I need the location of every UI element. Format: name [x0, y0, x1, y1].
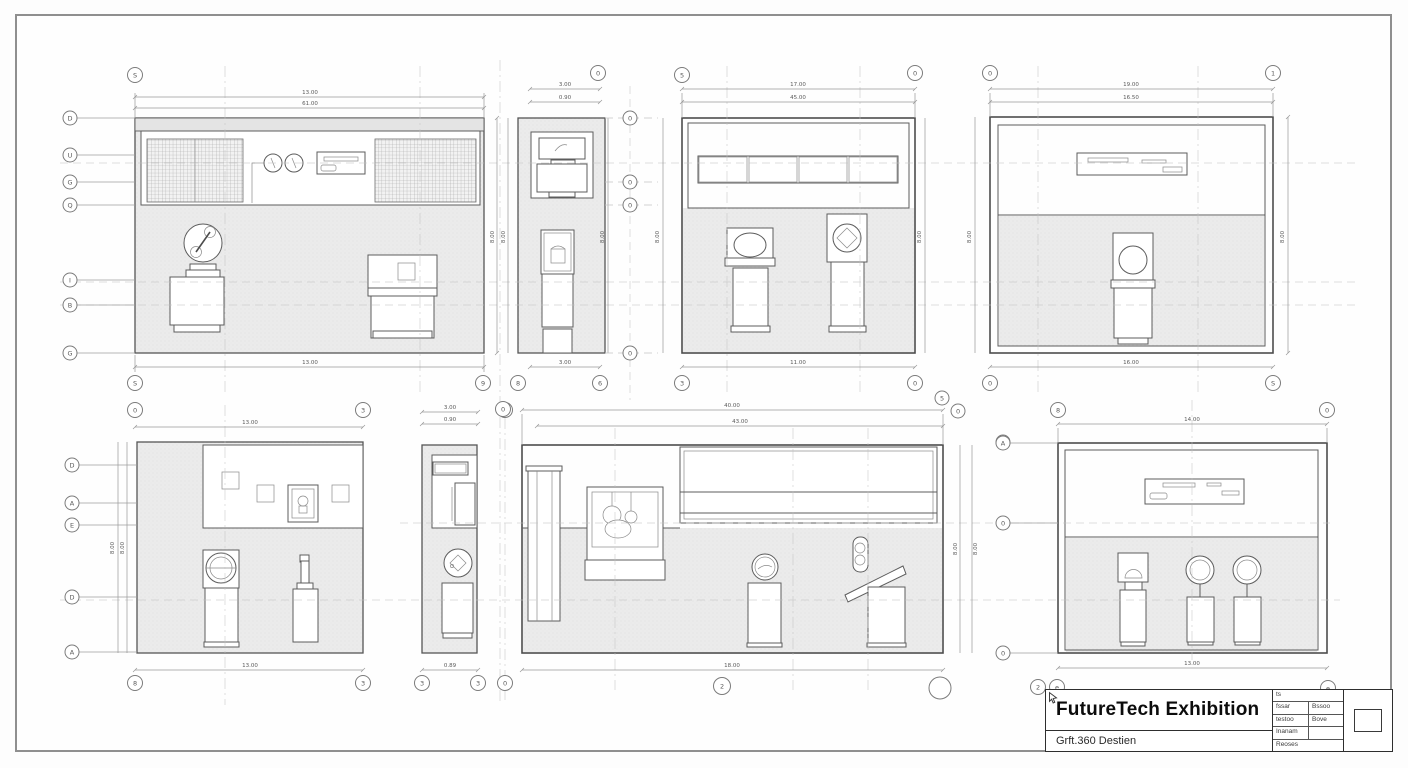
- svg-text:S: S: [133, 71, 137, 79]
- svg-text:0: 0: [1001, 649, 1005, 657]
- cursor-icon: [1046, 690, 1060, 704]
- svg-text:0: 0: [956, 407, 960, 415]
- grid-bubble: 8: [511, 376, 526, 391]
- dimension-label: 13.00: [242, 663, 258, 669]
- dome-pedestal: [1118, 553, 1148, 646]
- svg-text:5: 5: [940, 394, 944, 402]
- svg-text:8: 8: [1056, 406, 1060, 414]
- dimension-label: 40.00: [724, 403, 740, 409]
- dimension-label: 13.00: [302, 90, 318, 96]
- svg-text:1: 1: [1271, 69, 1275, 77]
- table-cell: Inanam: [1273, 727, 1309, 738]
- grid-bubble: 3: [356, 403, 371, 418]
- svg-text:I: I: [69, 276, 71, 284]
- grid-bubble: S: [128, 68, 143, 83]
- svg-text:A: A: [70, 499, 75, 507]
- grid-bubble: 0: [623, 346, 637, 360]
- table-cell: Bove: [1309, 715, 1343, 726]
- svg-text:0: 0: [1001, 519, 1005, 527]
- svg-text:3: 3: [361, 679, 365, 687]
- grid-bubble: S: [1266, 376, 1281, 391]
- porthole-pedestal: [203, 550, 239, 647]
- table-cell: testoo: [1273, 715, 1309, 726]
- svg-text:0: 0: [133, 406, 137, 414]
- dimension-label: 0.90: [444, 417, 457, 423]
- svg-text:0: 0: [988, 69, 992, 77]
- svg-text:2: 2: [1036, 683, 1040, 691]
- grid-bubble: A: [65, 496, 79, 510]
- svg-text:0: 0: [503, 679, 507, 687]
- svg-text:E: E: [70, 521, 74, 529]
- sphere-pedestal: [1111, 233, 1155, 344]
- svg-text:3: 3: [680, 379, 684, 387]
- view-elevation-top-left: [135, 118, 484, 353]
- svg-text:8: 8: [516, 379, 520, 387]
- grid-bubble: 0: [623, 175, 637, 189]
- svg-text:3: 3: [420, 679, 424, 687]
- grid-bubble: D: [63, 111, 77, 125]
- dimension-label: 13.00: [1184, 661, 1200, 667]
- grid-bubble: 2: [714, 678, 731, 695]
- svg-text:5: 5: [680, 71, 684, 79]
- dimension-label: 61.00: [302, 101, 318, 107]
- grid-bubble: S: [128, 376, 143, 391]
- stamp-box: [1354, 709, 1382, 732]
- grid-bubble: 0: [623, 111, 637, 125]
- grid-bubble: 3: [415, 676, 430, 691]
- svg-text:B: B: [68, 301, 72, 309]
- drawing-canvas: 13.00 61.00 13.00 8.00 S S 9 D: [0, 0, 1408, 768]
- dimension-label: 13.00: [242, 420, 258, 426]
- grid-bubble: 6: [593, 376, 608, 391]
- svg-text:0: 0: [913, 69, 917, 77]
- grid-bubble: 8: [1051, 403, 1066, 418]
- grid-bubble: 0: [623, 198, 637, 212]
- grid-bubble: 0: [908, 376, 923, 391]
- svg-text:0: 0: [913, 379, 917, 387]
- dimension-label: 16.50: [1123, 95, 1139, 101]
- grid-bubble: 0: [908, 66, 923, 81]
- fascia-band: [135, 118, 484, 131]
- table-row: Inanam: [1273, 727, 1343, 739]
- svg-text:0: 0: [501, 405, 505, 413]
- svg-text:0: 0: [628, 201, 632, 209]
- dimension-label: 8.00: [490, 230, 496, 243]
- grid-bubble: [929, 677, 951, 699]
- mesh-panel-right: [375, 139, 476, 202]
- grid-bubbles-left-column-3: A 0 0: [996, 436, 1058, 660]
- porthole-mid: [752, 554, 778, 580]
- svg-text:D: D: [67, 114, 72, 122]
- grid-bubble: 0: [1320, 403, 1335, 418]
- svg-text:A: A: [70, 648, 75, 656]
- view-elevation-top-narrow: [518, 118, 605, 353]
- grid-bubble: 3: [471, 676, 486, 691]
- grid-bubble: 9: [476, 376, 491, 391]
- grid-bubble: D: [65, 458, 79, 472]
- round-exhibit: [444, 549, 472, 577]
- view-elevation-top-right: [990, 117, 1273, 353]
- dimension-label: 14.00: [1184, 417, 1200, 423]
- grid-bubble: 5: [935, 391, 949, 405]
- project-title: FutureTech Exhibition: [1046, 690, 1272, 730]
- grid-bubble: 0: [996, 516, 1010, 530]
- grid-bubble: E: [65, 518, 79, 532]
- grid-bubble: A: [996, 436, 1010, 450]
- title-block: FutureTech Exhibition Grft.360 Destien t…: [1045, 689, 1393, 752]
- svg-text:G: G: [67, 178, 72, 186]
- dimension-label: 3.00: [559, 82, 572, 88]
- display-case-pedestal: [541, 230, 574, 353]
- svg-text:0: 0: [628, 349, 632, 357]
- grid-bubble: I: [63, 273, 77, 287]
- grid-bubbles-mid-column: 0 0 0 0: [605, 111, 658, 360]
- window-strip: [698, 156, 898, 183]
- exhibit-pedestal-ring: [827, 214, 867, 332]
- pedestal-right: [868, 587, 905, 643]
- svg-text:6: 6: [598, 379, 602, 387]
- dimension-label: 17.00: [790, 82, 806, 88]
- svg-text:0: 0: [628, 178, 632, 186]
- long-lightbox: [680, 447, 937, 523]
- svg-text:S: S: [1271, 379, 1275, 387]
- table-cell: fssar: [1273, 702, 1309, 713]
- dimension-label: 8.00: [1280, 230, 1286, 243]
- views-linework: [135, 117, 1327, 653]
- dimension-label: 3.00: [444, 405, 457, 411]
- grid-bubble: 3: [356, 676, 371, 691]
- svg-text:A: A: [1001, 439, 1006, 447]
- svg-text:2: 2: [720, 683, 724, 691]
- table-cell: ts: [1273, 690, 1343, 701]
- exhibit-pedestal-egg: [725, 228, 775, 332]
- svg-text:D: D: [69, 461, 74, 469]
- grid-bubble: 0: [983, 376, 998, 391]
- pedestal-mid: [748, 583, 781, 643]
- grid-bubble: G: [63, 175, 77, 189]
- table-cell: Bssoo: [1309, 702, 1343, 713]
- ring-pedestal-2: [1233, 556, 1261, 645]
- grid-bubble: 2: [1031, 680, 1046, 695]
- dimension-label: 45.00: [790, 95, 806, 101]
- grid-bubble: 8: [128, 676, 143, 691]
- grid-bubble: G: [63, 346, 77, 360]
- grid-bubble: 0: [496, 402, 511, 417]
- dimension-label: 11.00: [790, 360, 806, 366]
- grid-bubble: Q: [63, 198, 77, 212]
- svg-text:3: 3: [361, 406, 365, 414]
- dimension-label: 8.00: [973, 542, 979, 555]
- svg-text:0: 0: [1325, 406, 1329, 414]
- table-row: Reoses: [1273, 740, 1343, 751]
- dimension-label: 8.00: [120, 541, 126, 554]
- dimension-label: 8.00: [501, 230, 507, 243]
- tall-door-panel: [526, 466, 562, 621]
- view-elevation-bottom-left: [137, 442, 363, 653]
- svg-text:U: U: [68, 151, 73, 159]
- drawing-sheet: 13.00 61.00 13.00 8.00 S S 9 D: [0, 0, 1408, 768]
- wall-media-unit: [531, 132, 593, 198]
- dimension-label: 8.00: [967, 230, 973, 243]
- grid-bubble: 0: [983, 66, 998, 81]
- dimension-label: 8.00: [953, 542, 959, 555]
- title-block-stamp-cell: [1344, 690, 1392, 751]
- view-elevation-bottom-right: [1058, 443, 1327, 653]
- ring-pedestal-1: [1186, 556, 1214, 645]
- title-block-main: FutureTech Exhibition Grft.360 Destien: [1046, 690, 1273, 751]
- dimension-label: 13.00: [302, 360, 318, 366]
- svg-text:0: 0: [988, 379, 992, 387]
- dimension-label: 8.00: [110, 541, 116, 554]
- grid-bubble: 0: [591, 66, 606, 81]
- svg-text:G: G: [67, 349, 72, 357]
- view-elevation-top-mid: [682, 118, 915, 353]
- grid-bubble: 3: [675, 376, 690, 391]
- grid-bubble: 1: [1266, 66, 1281, 81]
- grid-bubbles-left-column-2: D A E D A: [65, 458, 137, 659]
- info-sign-panel: [1145, 479, 1244, 504]
- view-elevation-bottom-narrow: [422, 445, 477, 653]
- grid-bubble: 0: [128, 403, 143, 418]
- dimension-label: 16.00: [1123, 360, 1139, 366]
- dimension-label: 18.00: [724, 663, 740, 669]
- svg-text:D: D: [69, 593, 74, 601]
- capsule-fixture: [853, 537, 868, 572]
- svg-text:Q: Q: [67, 201, 72, 209]
- project-subtitle: Grft.360 Destien: [1046, 730, 1272, 751]
- svg-text:0: 0: [596, 69, 600, 77]
- dimension-label: 8.00: [655, 230, 661, 243]
- vitrine-case: [585, 487, 665, 580]
- dimension-label: 8.00: [600, 230, 606, 243]
- display-counter: [368, 255, 437, 338]
- svg-text:8: 8: [133, 679, 137, 687]
- svg-text:0: 0: [628, 114, 632, 122]
- table-row: ts: [1273, 690, 1343, 702]
- dimension-label: 3.00: [559, 360, 572, 366]
- grid-bubble: A: [65, 645, 79, 659]
- table-cell: [1309, 727, 1343, 738]
- grid-bubble: B: [63, 298, 77, 312]
- grid-bubbles-left-column: D U G Q I B G: [63, 111, 135, 360]
- view-elevation-bottom-mid: [522, 445, 943, 653]
- svg-text:3: 3: [476, 679, 480, 687]
- table-row: testoo Bove: [1273, 715, 1343, 727]
- grid-bubble: 0: [498, 676, 513, 691]
- grid-bubble: 5: [675, 68, 690, 83]
- dimension-label: 0.89: [444, 663, 457, 669]
- table-row: fssar Bssoo: [1273, 702, 1343, 714]
- grid-bubble: D: [65, 590, 79, 604]
- table-cell: Reoses: [1273, 740, 1343, 751]
- grid-bubble: 0: [996, 646, 1010, 660]
- dimension-label: 19.00: [1123, 82, 1139, 88]
- dimension-label: 43.00: [732, 419, 748, 425]
- dimension-label: 8.00: [917, 230, 923, 243]
- grid-bubble: 0: [951, 404, 965, 418]
- wall-sign-panel: [1077, 153, 1187, 175]
- dimension-label: 0.90: [559, 95, 572, 101]
- svg-text:S: S: [133, 379, 137, 387]
- svg-text:9: 9: [481, 379, 485, 387]
- grid-bubble: U: [63, 148, 77, 162]
- title-block-table: ts fssar Bssoo testoo Bove Inanam Reoses: [1273, 690, 1344, 751]
